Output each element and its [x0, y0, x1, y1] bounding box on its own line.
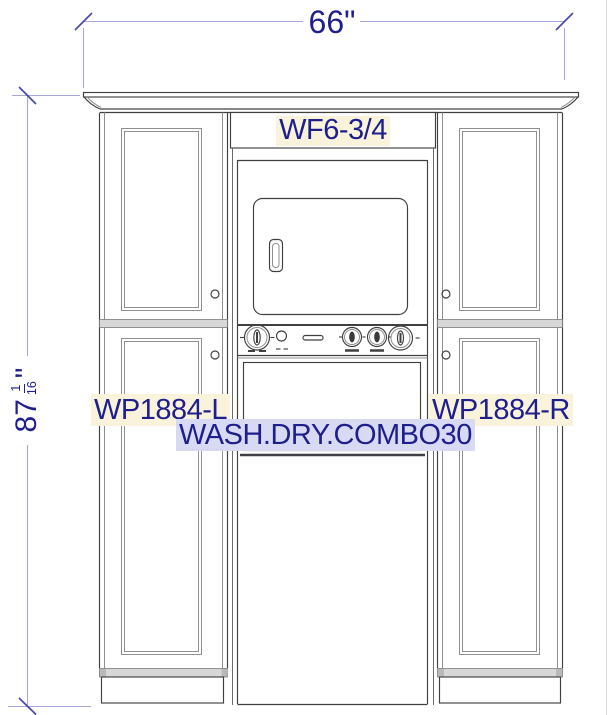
upper-door-panel-inner — [463, 132, 537, 308]
lower-door-panel-inner — [125, 342, 199, 652]
rail-end-cap — [556, 669, 562, 677]
control-slot — [303, 336, 323, 341]
lower-door-panel-inner — [463, 342, 537, 652]
control-knob-large-left — [240, 325, 275, 351]
dimension-height-label[interactable]: 87 1 16 " — [7, 355, 47, 445]
door-knob — [442, 351, 450, 359]
washer-dryer-label-container: WASH.DRY.COMBO30 — [176, 421, 475, 451]
dryer-door-handle — [270, 240, 283, 272]
dryer-door-handle-inner — [273, 244, 280, 268]
dimension-width-label[interactable]: 66" — [282, 4, 382, 40]
upper-door-panel — [122, 129, 202, 311]
rail-end-cap — [222, 669, 228, 677]
control-button-round — [276, 331, 288, 349]
cabinet-elevation-linework — [0, 0, 612, 715]
crown-molding[interactable] — [84, 93, 579, 113]
dimension-height-whole: 87 — [12, 399, 42, 432]
lower-door-panel — [122, 339, 202, 655]
dryer-door — [254, 199, 408, 315]
upper-door-panel — [460, 129, 540, 311]
control-panel — [238, 325, 428, 358]
filler-label-container: WF6-3/4 — [230, 116, 436, 146]
elevation-drawing-canvas[interactable]: 66" 87 1 16 " WF6-3/4 WP1884-L WP1884-R … — [0, 0, 612, 715]
control-knob-medium-b — [368, 328, 392, 351]
washer-dryer-label[interactable]: WASH.DRY.COMBO30 — [176, 419, 475, 451]
mid-rail — [438, 320, 563, 328]
dimension-height-unit: " — [12, 368, 42, 379]
lower-door-panel — [460, 339, 540, 655]
rail-end-cap — [100, 669, 106, 677]
toe-kick — [440, 677, 561, 703]
bottom-rail — [100, 669, 228, 678]
upper-door-panel-inner — [125, 132, 199, 308]
dimension-height-fraction: 1 16 — [10, 381, 38, 395]
door-knob — [211, 290, 219, 298]
control-knob-medium-a — [339, 328, 366, 351]
control-knob-large-right — [389, 326, 420, 350]
bottom-rail — [438, 669, 563, 678]
door-knob — [442, 290, 450, 298]
filler-label[interactable]: WF6-3/4 — [276, 116, 390, 146]
mid-rail — [100, 320, 228, 328]
rail-end-cap — [438, 669, 444, 677]
toe-kick — [102, 677, 224, 703]
door-knob — [211, 351, 219, 359]
